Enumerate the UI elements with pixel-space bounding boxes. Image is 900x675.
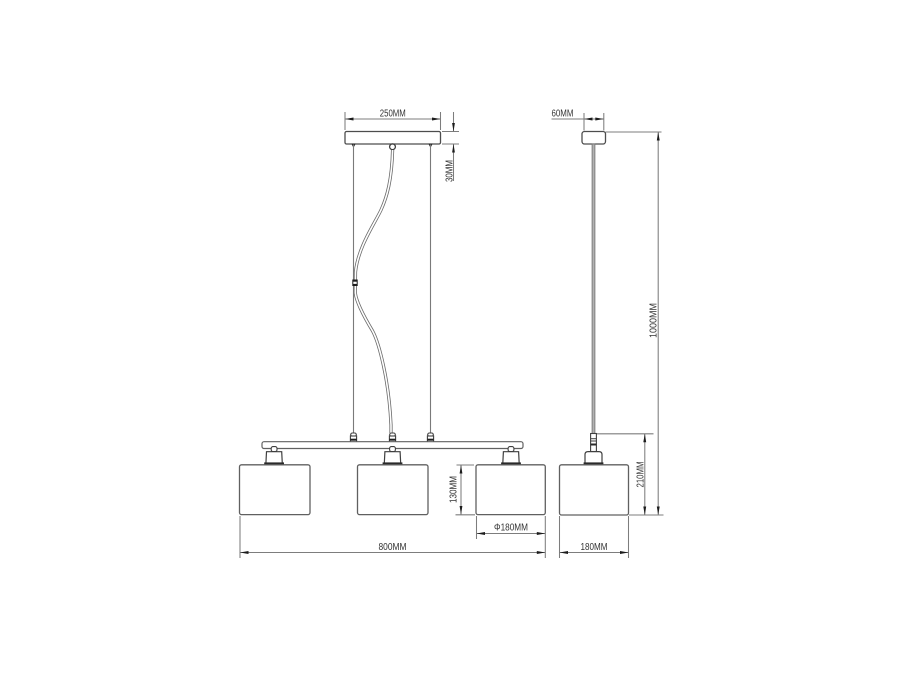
svg-text:130MM: 130MM — [449, 476, 460, 503]
svg-text:30MM: 30MM — [444, 160, 455, 182]
svg-text:210MM: 210MM — [635, 462, 646, 488]
svg-text:60MM: 60MM — [552, 109, 574, 120]
svg-text:250MM: 250MM — [380, 109, 406, 120]
svg-text:180MM: 180MM — [581, 542, 608, 553]
svg-text:1000MM: 1000MM — [649, 303, 660, 338]
svg-text:800MM: 800MM — [379, 542, 407, 553]
svg-text:Φ180MM: Φ180MM — [494, 523, 528, 534]
